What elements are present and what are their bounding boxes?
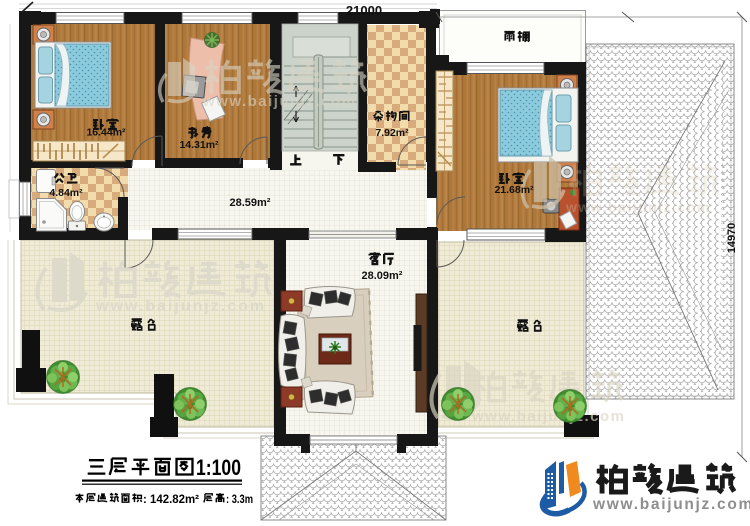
svg-text:16.44m²: 16.44m² <box>86 127 126 139</box>
svg-text:28.59m²: 28.59m² <box>230 197 271 209</box>
svg-text:www.baijunjz.com: www.baijunjz.com <box>471 408 625 425</box>
svg-text:21.68m²: 21.68m² <box>494 184 534 196</box>
svg-text:www.baijunjz.com: www.baijunjz.com <box>592 496 750 513</box>
svg-text:www.baijunjz.com: www.baijunjz.com <box>95 298 266 315</box>
svg-text:: 142.82m²: : 142.82m² <box>143 492 199 506</box>
svg-text:4.84m²: 4.84m² <box>49 187 83 199</box>
svg-text:www.baijunjz.com: www.baijunjz.com <box>565 199 711 215</box>
svg-text:: 3.3m: : 3.3m <box>226 492 253 506</box>
svg-text:14970: 14970 <box>726 223 738 254</box>
svg-text:www.baijunjz.com: www.baijunjz.com <box>202 93 356 110</box>
svg-text:28.09m²: 28.09m² <box>362 270 403 282</box>
svg-text:21000: 21000 <box>346 3 382 18</box>
svg-text:1:100: 1:100 <box>196 455 241 480</box>
svg-text:14.31m²: 14.31m² <box>179 139 219 151</box>
svg-text:7.92m²: 7.92m² <box>375 127 409 139</box>
